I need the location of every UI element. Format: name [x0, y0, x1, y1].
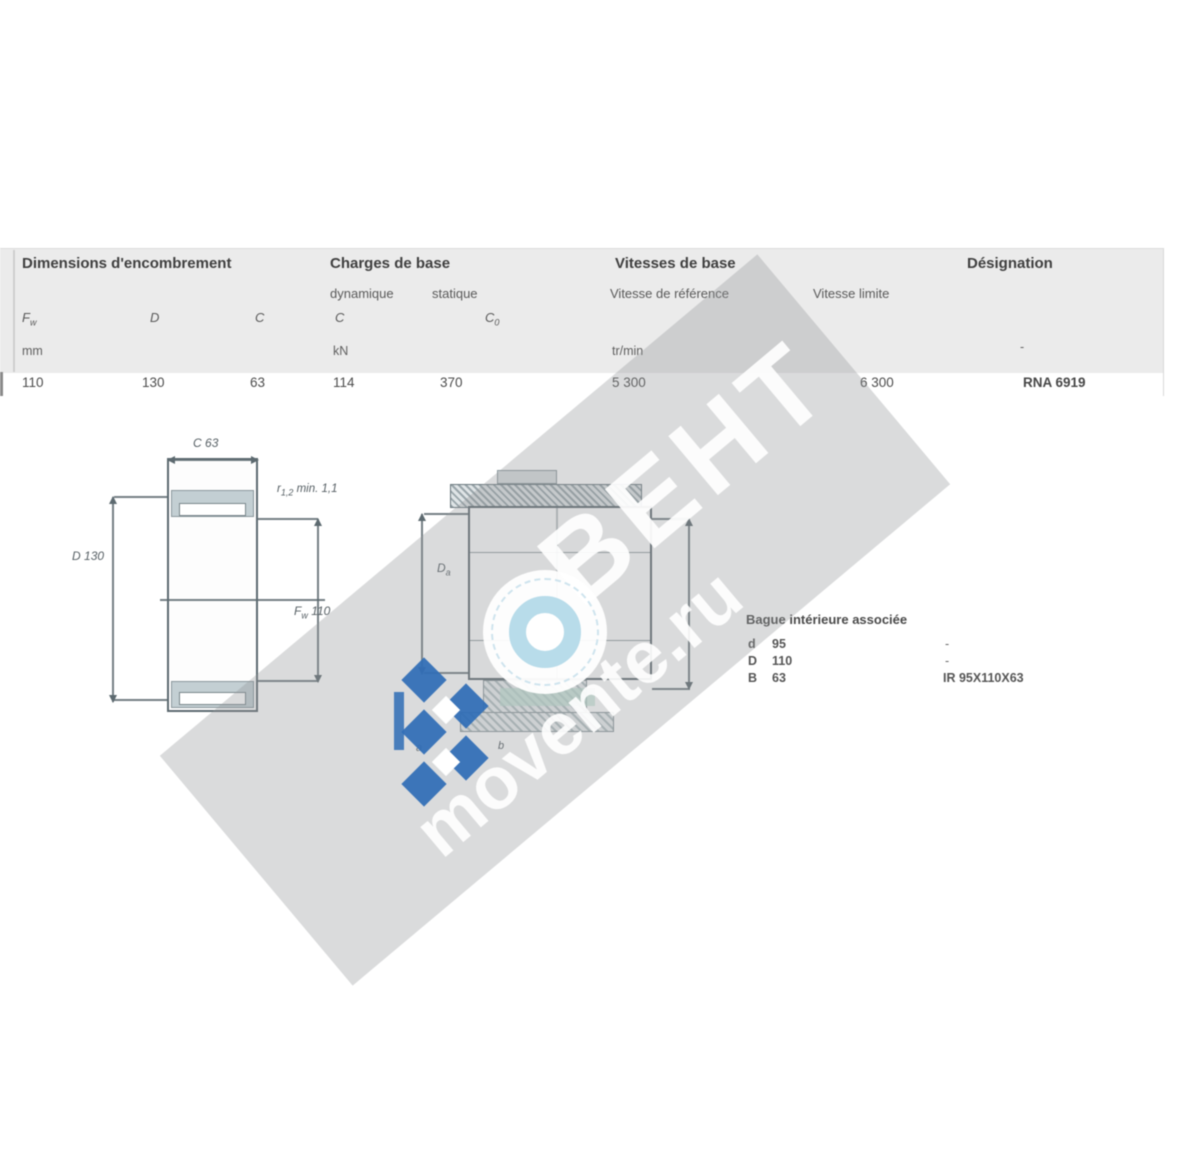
inner-ring-row-value: 63 — [772, 671, 786, 685]
arrowhead — [167, 456, 175, 464]
cell-fw: 110 — [22, 375, 44, 390]
datasheet-page: Dimensions d'encombrement Charges de bas… — [0, 0, 1200, 1165]
symbol-c-dyn: C — [335, 310, 344, 325]
chamfer-note: r1,2 min. 1,1 — [277, 483, 337, 497]
cell-c-dyn: 114 — [333, 375, 355, 390]
unit-kn: kN — [333, 344, 348, 358]
subheader-vitesse-limite: Vitesse limite — [813, 286, 889, 301]
inner-ring-row-value: 95 — [772, 637, 786, 651]
arrowhead — [251, 456, 259, 464]
subheader-statique: statique — [432, 286, 478, 301]
watermark-logo-ring — [509, 596, 581, 668]
inner-ring-row-value: 110 — [772, 654, 792, 668]
symbol-d: D — [150, 310, 159, 325]
col-group-designation: Désignation — [967, 255, 1053, 272]
unit-mm: mm — [22, 344, 43, 358]
table-left-border — [13, 250, 15, 372]
dim-line-top — [168, 459, 258, 461]
col-group-speeds: Vitesses de base — [615, 255, 736, 272]
dim-label-od: D 130 — [72, 549, 104, 563]
cell-designation: RNA 6919 — [1023, 375, 1086, 390]
cell-c: 63 — [250, 375, 265, 390]
cell-c0: 370 — [440, 375, 463, 390]
needle-row-top — [179, 503, 246, 516]
subheader-dynamique: dynamique — [330, 286, 394, 301]
col-group-dimensions: Dimensions d'encombrement — [22, 255, 231, 272]
cell-d: 130 — [142, 375, 165, 390]
row-edge-tick — [0, 372, 3, 396]
extension-line — [114, 699, 167, 701]
dim-line-left — [112, 497, 114, 702]
col-group-loads: Charges de base — [330, 255, 450, 272]
inner-ring-row-label: B — [748, 671, 757, 685]
inner-ring-row-right: - — [945, 637, 949, 651]
center-line — [160, 599, 325, 601]
symbol-c: C — [255, 310, 264, 325]
symbol-c0: C0 — [485, 310, 499, 328]
table-right-border — [1163, 248, 1164, 396]
extension-line — [114, 496, 167, 498]
unit-designation: - — [1020, 340, 1024, 354]
inner-ring-designation: IR 95X110X63 — [943, 671, 1024, 685]
inner-ring-row-label: D — [748, 654, 757, 668]
dim-label-width: C 63 — [193, 436, 218, 450]
logo-bar — [394, 692, 404, 750]
symbol-fw: Fw — [22, 310, 36, 328]
inner-ring-row-right: - — [945, 654, 949, 668]
extension-line — [258, 518, 318, 520]
